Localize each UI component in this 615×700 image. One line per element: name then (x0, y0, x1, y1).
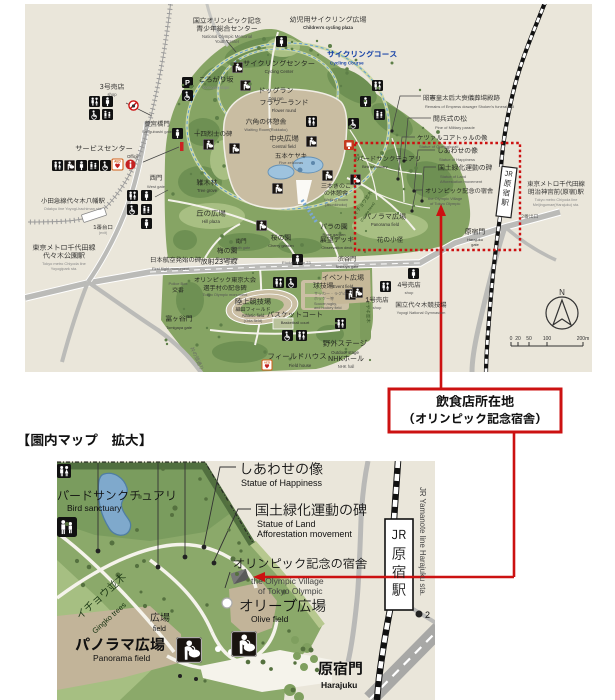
svg-text:Tokyo Olympic monument: Tokyo Olympic monument (203, 292, 249, 297)
svg-text:Observation deck: Observation deck (321, 245, 352, 250)
svg-text:Office: Office (127, 154, 139, 159)
svg-text:Yoyogipark sta.: Yoyogipark sta. (51, 266, 77, 271)
svg-text:Tree grove: Tree grove (197, 188, 218, 193)
svg-text:2: 2 (425, 610, 430, 620)
svg-text:Meijingumae(Harajuku) sta.: Meijingumae(Harajuku) sta. (533, 203, 579, 207)
svg-text:and hockey field: and hockey field (314, 306, 341, 310)
svg-text:Etudal Route 23: Etudal Route 23 (282, 260, 311, 265)
svg-text:100: 100 (543, 336, 552, 342)
svg-text:shop: shop (405, 290, 414, 295)
svg-text:Tomigaya gate: Tomigaya gate (166, 325, 193, 330)
svg-text:shop: shop (107, 92, 117, 97)
svg-text:Shibuya gate: Shibuya gate (336, 264, 359, 269)
svg-text:Statue of Happiness: Statue of Happiness (241, 478, 323, 488)
svg-text:Cycling Course: Cycling Course (330, 61, 364, 66)
svg-text:West gate: West gate (147, 184, 166, 189)
svg-text:N: N (559, 288, 565, 297)
svg-text:Event field: Event field (333, 284, 354, 289)
svg-text:(exit): (exit) (99, 231, 108, 235)
svg-text:0: 0 (510, 336, 513, 342)
svg-text:Flower round: Flower round (272, 108, 297, 113)
svg-text:Five zelkovas: Five zelkovas (279, 160, 303, 165)
svg-text:Hill plaza: Hill plaza (202, 219, 220, 224)
svg-text:Central field: Central field (272, 144, 296, 149)
svg-text:Rose garden: Rose garden (323, 232, 346, 237)
svg-text:(Oda field): (Oda field) (244, 318, 263, 323)
svg-text:Odakyu line Yoyogi-hachiman st: Odakyu line Yoyogi-hachiman sta. (44, 206, 103, 211)
svg-text:Afforestation movement: Afforestation movement (257, 529, 352, 539)
svg-text:Yoyogi National Gymnasium: Yoyogi National Gymnasium (397, 310, 446, 315)
svg-text:of Tokyo Olympic: of Tokyo Olympic (258, 586, 323, 596)
svg-text:200m: 200m (577, 336, 590, 342)
svg-text:20: 20 (515, 336, 521, 342)
svg-text:Cycling Center: Cycling Center (265, 69, 294, 74)
svg-text:Police Box: Police Box (169, 281, 188, 286)
svg-text:First flight monument: First flight monument (152, 266, 190, 271)
svg-text:Statue of Happiness: Statue of Happiness (439, 157, 475, 162)
svg-text:Olive field: Olive field (251, 614, 289, 624)
svg-text:Korogari slope: Korogari slope (202, 85, 230, 90)
svg-text:Sangubashi gate: Sangubashi gate (142, 129, 173, 134)
svg-text:Children's cycling plaza: Children's cycling plaza (303, 25, 353, 30)
svg-text:(3bonkinoko): (3bonkinoko) (325, 203, 348, 207)
svg-text:Waiting Room(Rokkaku): Waiting Room(Rokkaku) (244, 127, 288, 132)
svg-text:JR Yamanote line Harajuku sta.: JR Yamanote line Harajuku sta. (418, 487, 427, 596)
svg-text:shop: shop (373, 305, 382, 310)
svg-text:Bird sanctuary: Bird sanctuary (362, 164, 388, 169)
svg-text:Basketball court: Basketball court (281, 320, 310, 325)
svg-text:Remains of Empress dowager Sho: Remains of Empress dowager Shoken's fune… (425, 104, 514, 109)
svg-text:Panorama field: Panorama field (93, 653, 150, 663)
svg-text:of Tokyo Olympic: of Tokyo Olympic (430, 201, 460, 206)
svg-text:Cherry garden: Cherry garden (268, 243, 294, 248)
svg-text:Statue of Land: Statue of Land (257, 519, 316, 529)
svg-text:the Olympic Village: the Olympic Village (251, 576, 324, 586)
svg-text:Field house: Field house (289, 363, 312, 368)
svg-text:NHK hall: NHK hall (338, 364, 355, 369)
svg-text:Outdoor stage: Outdoor stage (331, 350, 359, 355)
svg-text:Bird sanctuary: Bird sanctuary (67, 503, 122, 513)
svg-text:Waiting Room: Waiting Room (324, 198, 348, 202)
svg-text:Afforestation movement: Afforestation movement (440, 179, 483, 184)
svg-text:Pine of Military parade: Pine of Military parade (435, 125, 476, 130)
svg-text:50: 50 (526, 336, 532, 342)
svg-text:Harajuku: Harajuku (321, 680, 357, 690)
svg-text:field: field (153, 626, 166, 633)
svg-text:Panorama field: Panorama field (371, 222, 400, 227)
svg-text:Tokyo metro Chiyoda line: Tokyo metro Chiyoda line (535, 198, 578, 202)
svg-text:Youth Center: Youth Center (215, 39, 240, 44)
svg-text:gate: gate (471, 242, 480, 247)
